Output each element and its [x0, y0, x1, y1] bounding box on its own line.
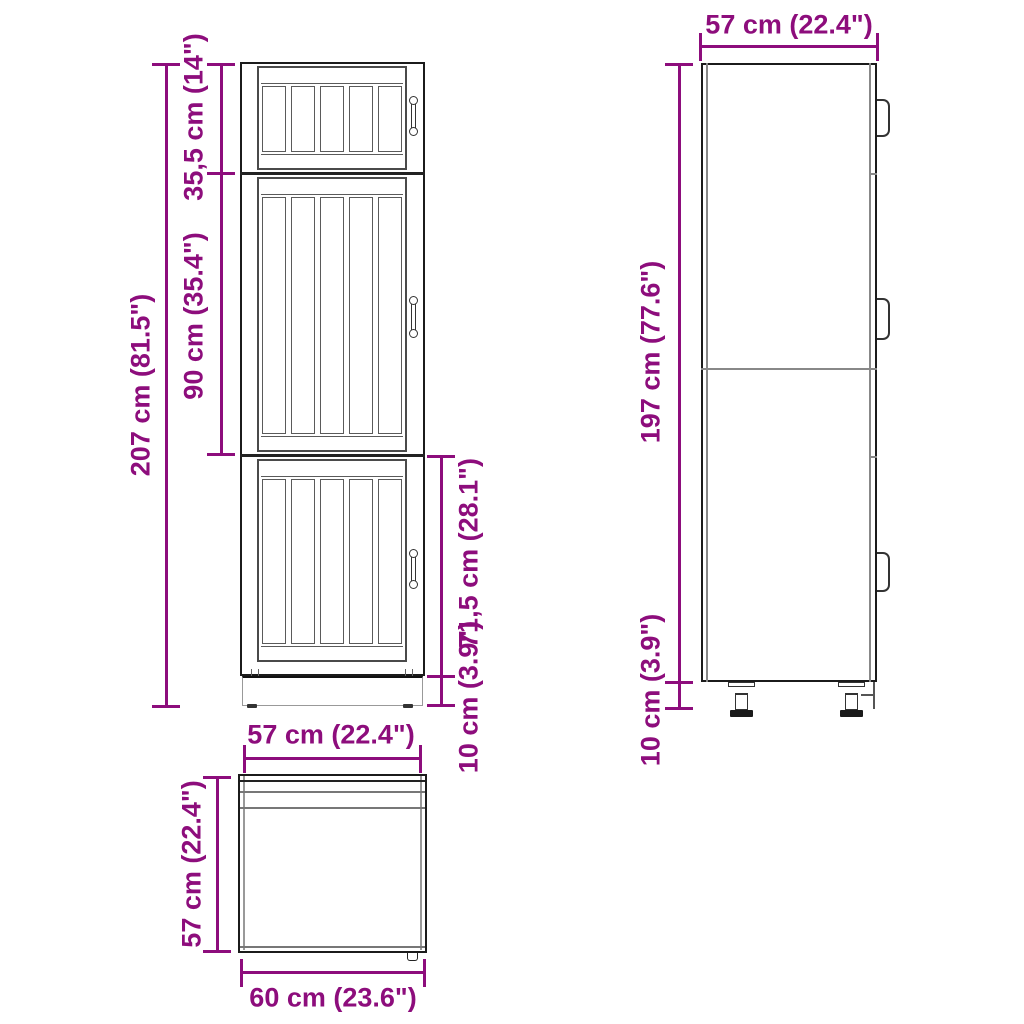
dim-tick — [203, 776, 231, 779]
door-slat — [262, 479, 286, 644]
door-slat — [291, 86, 315, 152]
front-door-middle — [257, 177, 407, 452]
door-slat — [320, 197, 344, 434]
dim-tick — [243, 745, 246, 773]
dim-label-front-bottom-section: 71,5 cm (28.1") — [456, 458, 483, 648]
foot-flange — [728, 682, 755, 687]
adjustable-foot — [728, 682, 755, 717]
dim-tick — [207, 63, 235, 66]
top-foot — [407, 953, 418, 961]
door-slat — [378, 479, 402, 644]
door-slats — [261, 84, 403, 154]
handle-knob — [409, 329, 418, 338]
dim-line-top-side-depth — [216, 776, 219, 953]
door-slat — [378, 197, 402, 434]
foot-stem — [735, 693, 748, 710]
front-plinth — [242, 676, 423, 706]
door-slat — [320, 479, 344, 644]
foot-base — [730, 710, 753, 717]
foot-tip — [403, 704, 413, 708]
front-door-bottom — [257, 459, 407, 662]
dim-tick — [427, 704, 455, 707]
door-handle — [408, 96, 419, 136]
front-door-top — [257, 66, 407, 170]
dim-tick — [665, 707, 693, 710]
side-rear-edge-line — [873, 682, 875, 709]
top-side-wall-line — [243, 776, 245, 950]
door-slat — [378, 86, 402, 152]
door-slat — [291, 479, 315, 644]
top-frame-line — [240, 791, 425, 793]
door-slat — [349, 86, 373, 152]
handle-knob — [409, 580, 418, 589]
side-back-panel-line — [706, 63, 708, 682]
side-door-gap — [870, 456, 877, 458]
foot-base — [840, 710, 863, 717]
door-slat — [349, 197, 373, 434]
top-frame-line — [240, 807, 425, 809]
door-handle — [408, 549, 419, 589]
handle-knob — [409, 96, 418, 105]
dimension-diagram: 207 cm (81.5") 35,5 cm (14") 90 cm (35.4… — [0, 0, 1024, 1024]
dim-tick — [152, 63, 180, 66]
dim-label-top-depth: 57 cm (22.4") — [247, 722, 414, 749]
side-rear-tick — [861, 694, 874, 696]
foot-flange — [838, 682, 865, 687]
dim-line-top-width — [240, 971, 426, 974]
foot-stem — [845, 693, 858, 710]
door-slat — [320, 86, 344, 152]
dim-tick — [665, 63, 693, 66]
front-junction-line — [240, 454, 425, 457]
side-divider-line — [701, 368, 877, 370]
dim-tick — [427, 455, 455, 458]
dim-line-front-bottom-section — [440, 455, 443, 707]
door-rail — [261, 436, 403, 450]
side-cabinet-outline — [701, 63, 877, 682]
dim-tick — [427, 675, 455, 678]
dim-label-front-total-height: 207 cm (81.5") — [128, 294, 155, 476]
dim-label-side-depth: 57 cm (22.4") — [705, 12, 872, 39]
foot-tip — [247, 704, 257, 708]
dim-tick — [240, 959, 243, 987]
door-slat — [291, 197, 315, 434]
door-rail — [261, 461, 403, 477]
dim-label-front-plinth: 10 cm (3.9") — [456, 621, 483, 773]
dim-tick — [876, 33, 879, 61]
door-slats — [261, 195, 403, 436]
dim-tick — [665, 681, 693, 684]
door-rail — [261, 68, 403, 84]
handle-bar — [411, 302, 416, 332]
handle-knob — [409, 127, 418, 136]
dim-line-side-depth — [699, 45, 879, 48]
top-door-line — [240, 780, 425, 782]
door-rail — [261, 646, 403, 660]
dim-tick — [152, 705, 180, 708]
dim-line-front-total-height — [165, 63, 168, 708]
door-handle — [408, 296, 419, 338]
dim-tick — [419, 745, 422, 773]
top-cabinet-outline — [238, 774, 427, 953]
top-side-wall-line — [420, 776, 422, 950]
side-door-front-line — [869, 63, 871, 682]
dim-label-front-top-section: 35,5 cm (14") — [181, 33, 208, 200]
dim-line-top-depth — [243, 757, 422, 760]
dim-tick — [207, 172, 235, 175]
dim-label-top-width: 60 cm (23.6") — [249, 985, 416, 1012]
handle-bar — [411, 555, 416, 583]
handle-knob — [409, 296, 418, 305]
dim-line-front-sections — [220, 63, 223, 456]
dim-tick — [699, 33, 702, 61]
door-rail — [261, 179, 403, 195]
door-handle-profile — [877, 552, 890, 592]
door-rail — [261, 154, 403, 168]
dim-label-top-side-depth: 57 cm (22.4") — [179, 780, 206, 947]
front-junction-line — [240, 172, 425, 175]
door-slat — [262, 197, 286, 434]
door-handle-profile — [877, 298, 890, 340]
dim-label-side-plinth: 10 cm (3.9") — [638, 614, 665, 766]
door-slat — [262, 86, 286, 152]
handle-bar — [411, 102, 416, 130]
door-slat — [349, 479, 373, 644]
foot-attachment — [251, 669, 259, 676]
dim-tick — [423, 959, 426, 987]
dim-tick — [207, 453, 235, 456]
side-door-gap — [870, 173, 877, 175]
dim-line-side-height — [678, 63, 681, 710]
dim-label-side-height: 197 cm (77.6") — [638, 261, 665, 443]
door-handle-profile — [877, 99, 890, 137]
foot-attachment — [405, 669, 413, 676]
door-slats — [261, 477, 403, 646]
dim-tick — [203, 950, 231, 953]
top-back-line — [240, 946, 425, 948]
dim-label-front-middle-section: 90 cm (35.4") — [181, 232, 208, 399]
adjustable-foot — [838, 682, 865, 717]
handle-knob — [409, 549, 418, 558]
